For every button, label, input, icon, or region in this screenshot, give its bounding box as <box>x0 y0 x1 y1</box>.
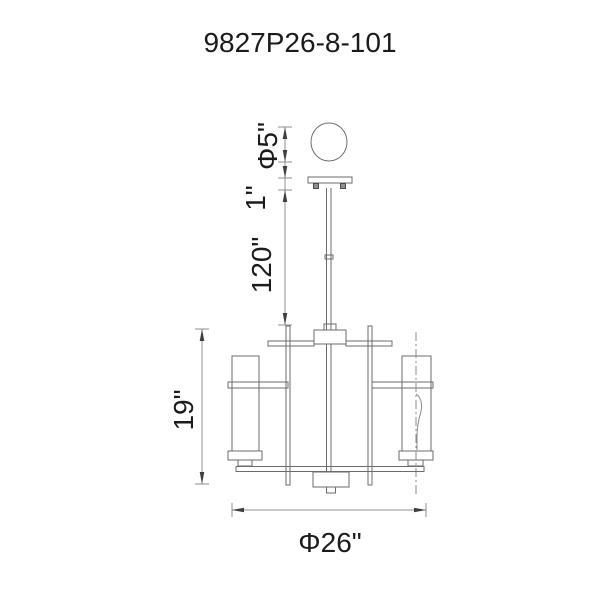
canopy-assembly <box>308 123 352 189</box>
shade-left-socket <box>238 460 252 466</box>
arrow-down-body <box>200 472 205 484</box>
top-arm-left <box>268 341 314 346</box>
top-hub <box>314 330 346 344</box>
frame-bar-left <box>286 326 290 485</box>
label-canopy-height: 1" <box>240 185 271 211</box>
label-body-height: 19" <box>168 389 199 430</box>
arrow-left-body <box>232 508 244 513</box>
rod-hub-coupler <box>324 324 336 330</box>
arrow-up-ball <box>283 127 288 139</box>
arrow-down-ball <box>283 150 288 162</box>
top-arm-right <box>346 341 392 346</box>
dimension-chain-left: Φ5" 1" 120" <box>240 122 292 325</box>
dimension-body-height: 19" <box>168 329 209 484</box>
label-body-diameter: Φ26" <box>298 527 361 558</box>
arrow-down-rod <box>283 313 288 325</box>
arrow-up-body <box>200 329 205 341</box>
dimension-diagram: 9827P26-8-101 <box>0 0 600 600</box>
arrow-down-canopy <box>283 166 288 178</box>
arrow-up-rod <box>283 190 288 202</box>
canopy-screw-left <box>314 184 319 189</box>
bottom-finial <box>327 487 336 493</box>
dimension-body-width: Φ26" <box>232 503 426 558</box>
shade-left-ring-arm <box>228 382 288 388</box>
canopy-screw-right <box>341 184 346 189</box>
canopy-plate <box>308 177 352 183</box>
shade-left-bottom-cap <box>228 451 262 460</box>
label-rod-drop: 120" <box>246 237 277 294</box>
ceiling-ball <box>311 123 347 161</box>
shade-left <box>232 356 259 451</box>
bottom-hub <box>313 472 349 487</box>
arrow-right-body <box>414 508 426 513</box>
frame-bar-right <box>368 326 372 485</box>
spec-sheet: 9827P26-8-101 <box>0 0 600 600</box>
bulb-outline <box>416 394 422 450</box>
product-code: 9827P26-8-101 <box>203 27 396 58</box>
bottom-arm-bar <box>236 467 424 472</box>
label-ball-diameter: Φ5" <box>252 122 283 170</box>
